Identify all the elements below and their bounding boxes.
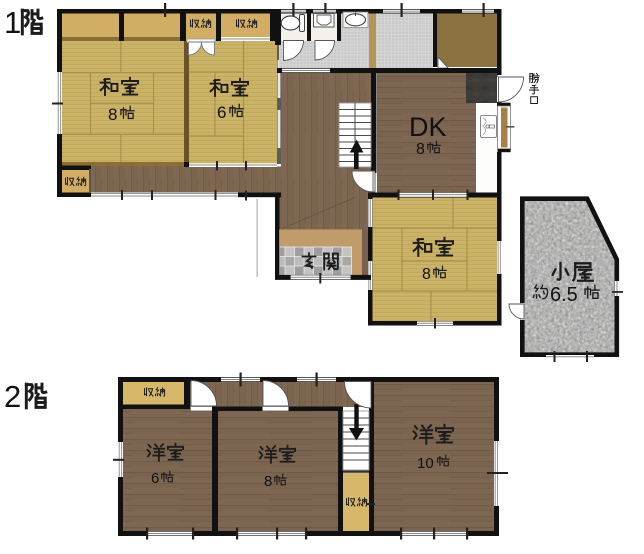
svg-text:10: 10 — [417, 455, 434, 472]
svg-text:8: 8 — [416, 141, 425, 158]
svg-text:6: 6 — [217, 103, 226, 122]
svg-text:6: 6 — [151, 470, 159, 487]
svg-text:1: 1 — [4, 5, 21, 40]
svg-text:6.5: 6.5 — [550, 284, 578, 306]
svg-text:8: 8 — [264, 473, 272, 490]
svg-text:DK: DK — [409, 112, 447, 142]
svg-text:2: 2 — [4, 379, 21, 414]
svg-text:8: 8 — [422, 266, 431, 283]
svg-text:8: 8 — [108, 105, 117, 124]
